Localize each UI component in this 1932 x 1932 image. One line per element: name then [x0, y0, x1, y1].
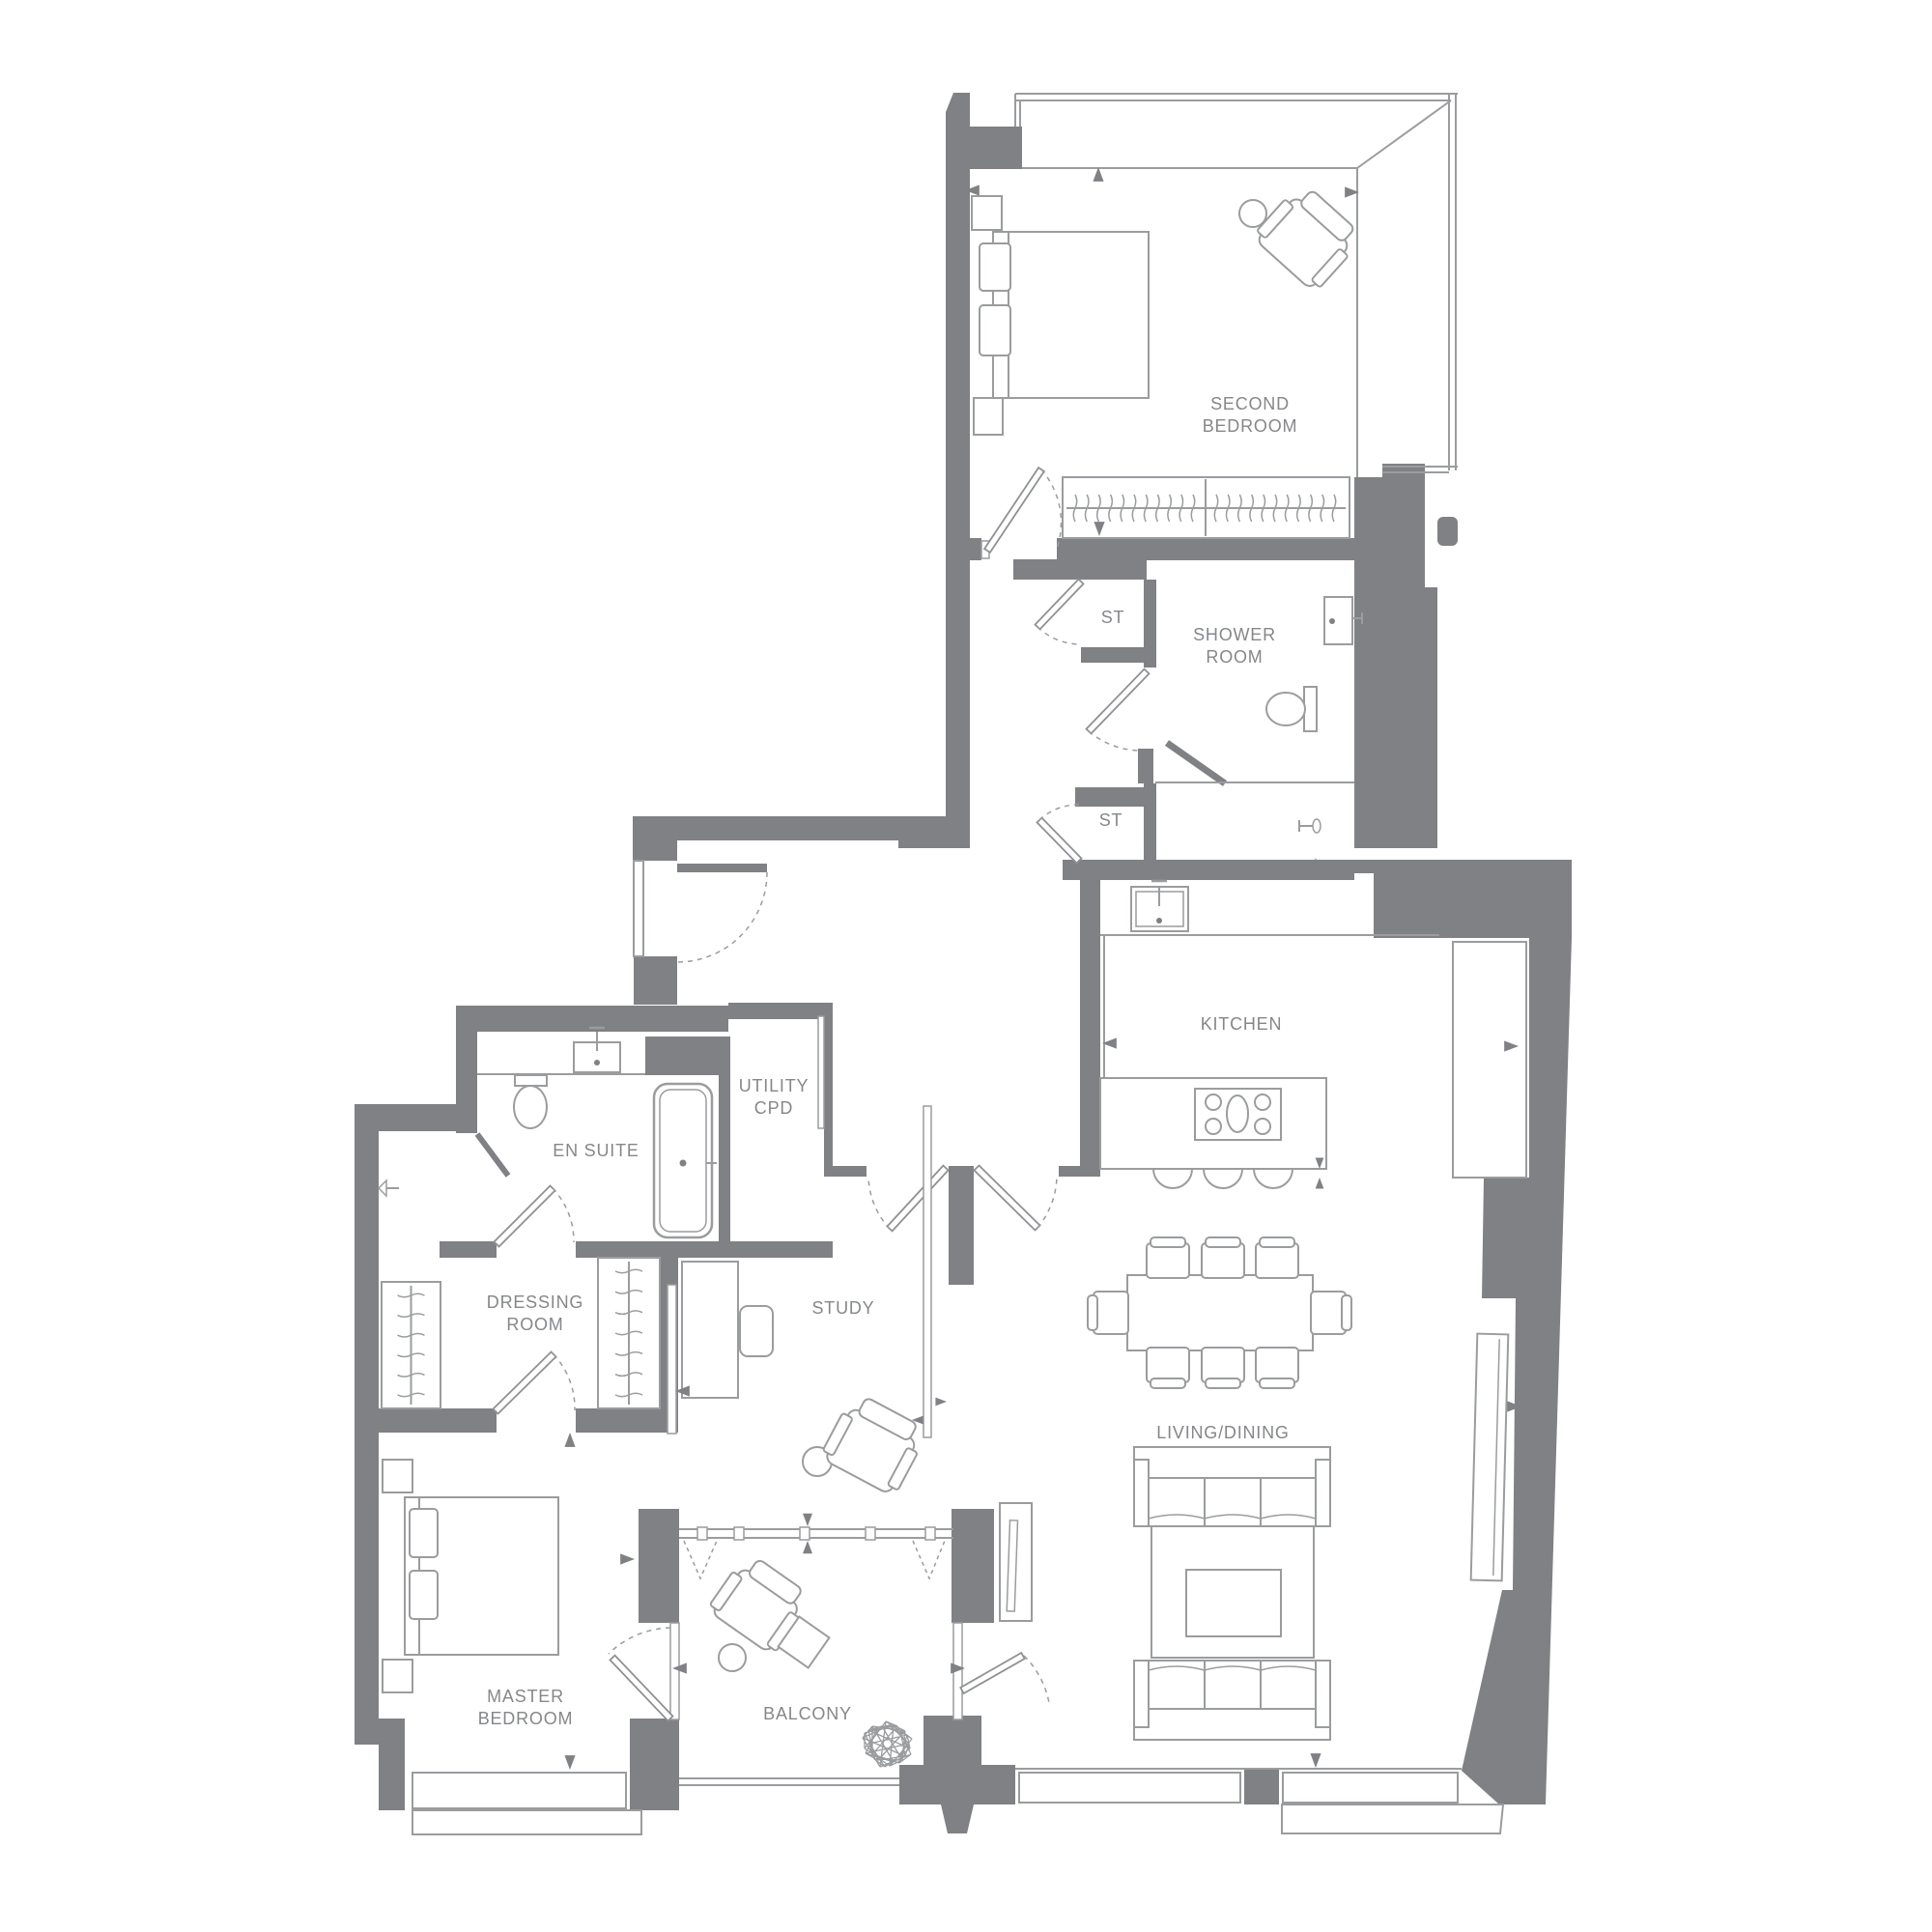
svg-text:LIVING/DINING: LIVING/DINING: [1156, 1423, 1289, 1442]
svg-text:ROOM: ROOM: [1206, 647, 1263, 667]
svg-text:ST: ST: [1101, 608, 1125, 627]
svg-text:DRESSING: DRESSING: [487, 1293, 583, 1312]
svg-text:KITCHEN: KITCHEN: [1201, 1014, 1283, 1034]
svg-text:BALCONY: BALCONY: [763, 1704, 852, 1723]
svg-text:BEDROOM: BEDROOM: [1203, 416, 1298, 436]
svg-text:UTILITY: UTILITY: [739, 1076, 810, 1095]
svg-text:MASTER: MASTER: [487, 1687, 564, 1706]
svg-text:SHOWER: SHOWER: [1193, 625, 1276, 644]
svg-text:CPD: CPD: [754, 1098, 793, 1118]
svg-text:ST: ST: [1099, 810, 1123, 830]
svg-text:BEDROOM: BEDROOM: [478, 1709, 574, 1728]
svg-text:STUDY: STUDY: [811, 1298, 874, 1318]
svg-text:SECOND: SECOND: [1210, 394, 1290, 413]
svg-text:ROOM: ROOM: [506, 1315, 563, 1334]
svg-text:EN SUITE: EN SUITE: [553, 1141, 639, 1160]
